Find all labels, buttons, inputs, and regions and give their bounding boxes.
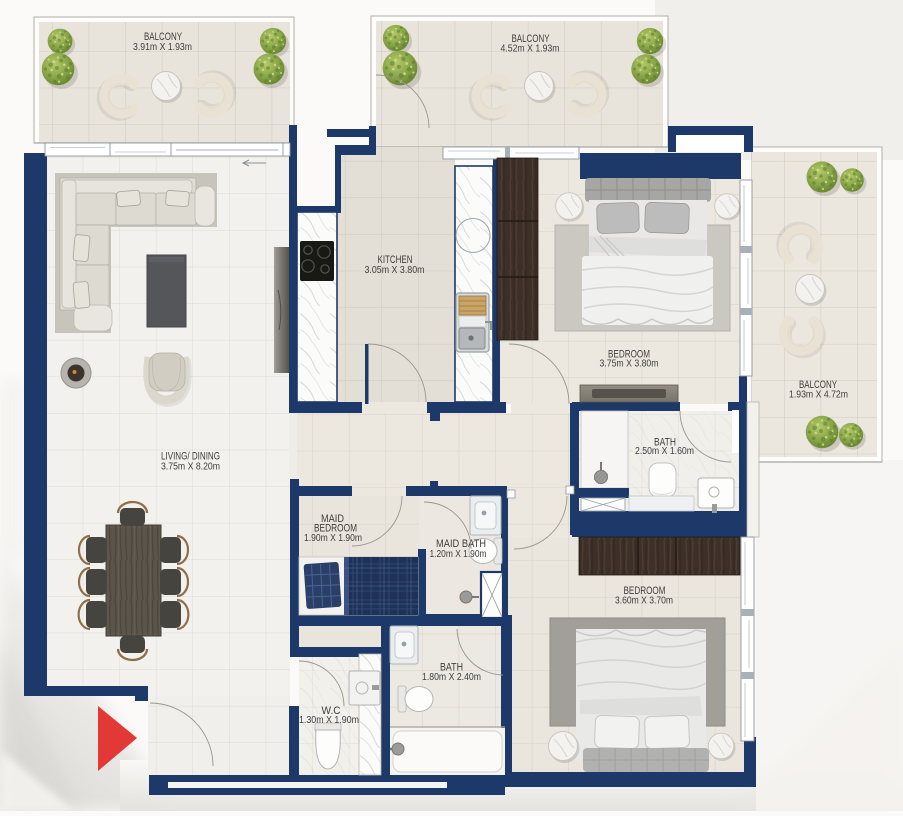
svg-text:4.52m X 1.93m: 4.52m X 1.93m (501, 44, 560, 55)
svg-text:1.30m X 1.90m: 1.30m X 1.90m (299, 715, 359, 726)
svg-text:2.50m X 1.60m: 2.50m X 1.60m (635, 446, 694, 457)
svg-text:3.75m X 8.20m: 3.75m X 8.20m (161, 462, 220, 473)
svg-text:3.60m X 3.70m: 3.60m X 3.70m (615, 596, 673, 607)
svg-text:1.20m X 1.90m: 1.20m X 1.90m (430, 549, 487, 560)
svg-text:3.05m X 3.80m: 3.05m X 3.80m (365, 265, 425, 276)
svg-text:3.91m X 1.93m: 3.91m X 1.93m (133, 42, 192, 53)
svg-text:3.75m X 3.80m: 3.75m X 3.80m (600, 359, 659, 370)
svg-text:1.80m X 2.40m: 1.80m X 2.40m (422, 672, 481, 683)
svg-text:1.90m X 1.90m: 1.90m X 1.90m (304, 533, 362, 544)
svg-text:1.93m X 4.72m: 1.93m X 4.72m (789, 390, 848, 401)
